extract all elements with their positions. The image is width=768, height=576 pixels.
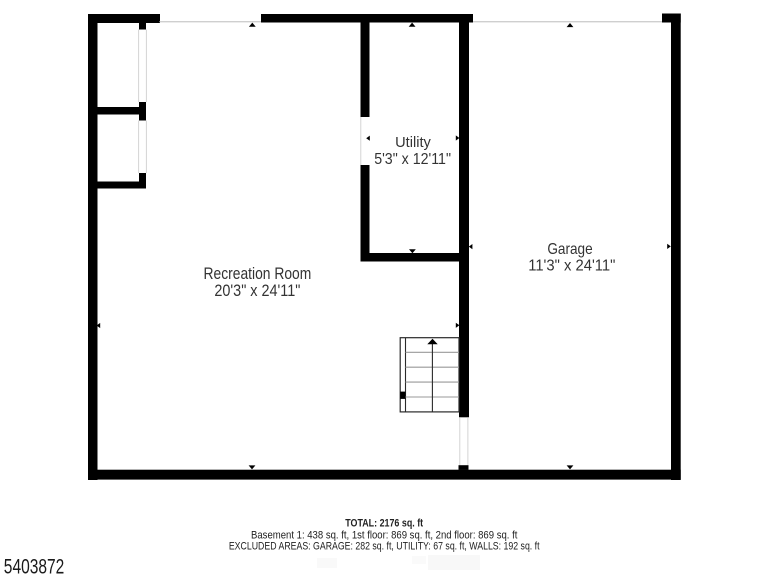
svg-text:5403872: 5403872 [4, 555, 65, 576]
svg-text:Basement 1: 438 sq. ft, 1st fl: Basement 1: 438 sq. ft, 1st floor: 869 s… [251, 529, 517, 541]
svg-text:Utility: Utility [395, 134, 431, 151]
svg-text:20'3" x 24'11": 20'3" x 24'11" [214, 281, 300, 300]
svg-text:Garage: Garage [547, 241, 592, 258]
svg-text:11'3" x 24'11": 11'3" x 24'11" [528, 258, 615, 275]
svg-text:TOTAL: 2176 sq. ft: TOTAL: 2176 sq. ft [345, 517, 423, 529]
svg-text:EXCLUDED AREAS: GARAGE: 282 sq: EXCLUDED AREAS: GARAGE: 282 sq. ft, UTIL… [229, 541, 540, 553]
svg-text:5'3" x 12'11": 5'3" x 12'11" [374, 151, 451, 168]
